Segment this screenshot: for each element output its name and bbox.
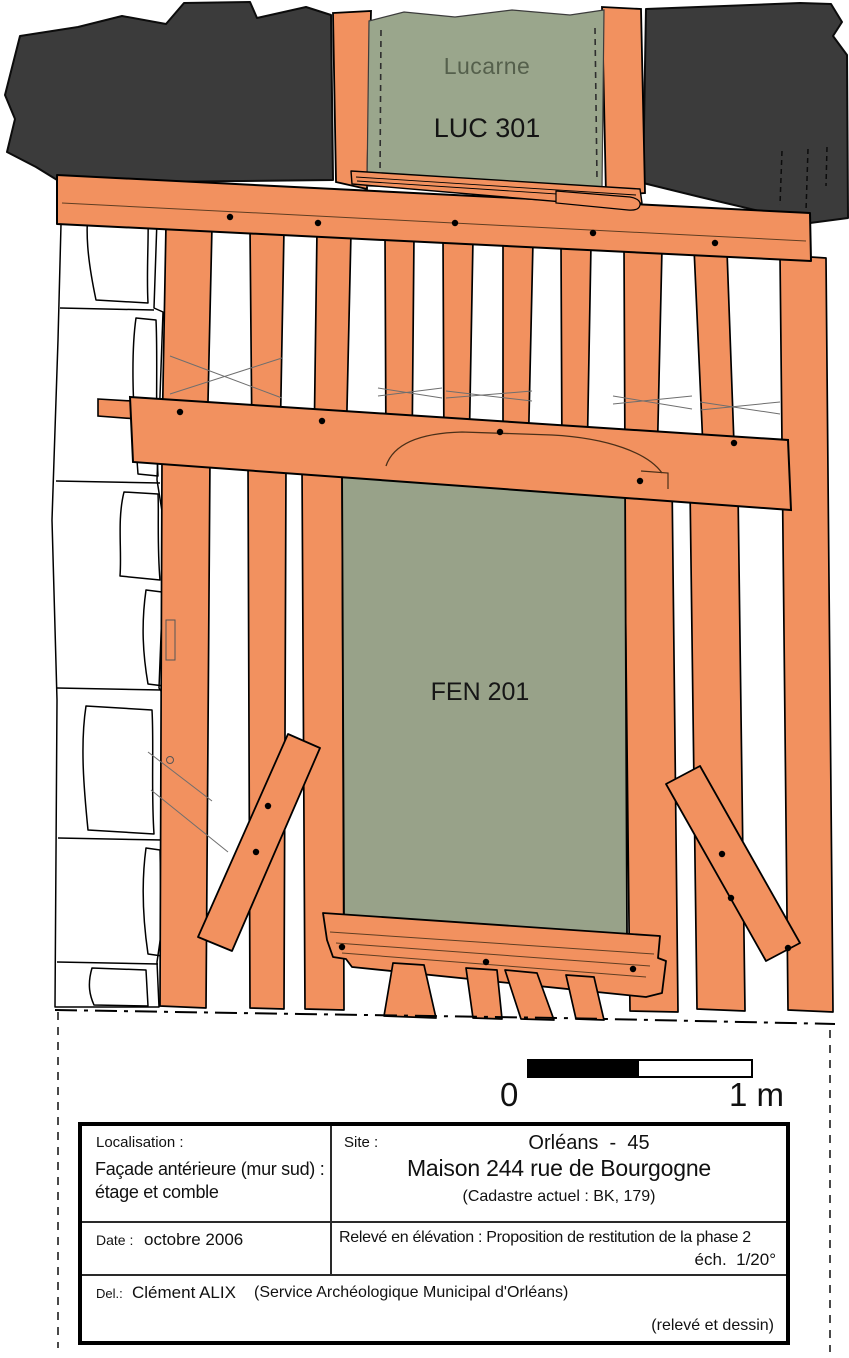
lucarne-title-label: Lucarne	[444, 53, 531, 79]
scale-one-meter-label: 1 m	[688, 1076, 784, 1114]
lucarne-dormer: Lucarne LUC 301	[333, 7, 645, 196]
localisation-cell: Localisation : Façade antérieure (mur su…	[82, 1126, 332, 1223]
window-jamb-post	[624, 475, 678, 1012]
date-label: Date :	[96, 1232, 133, 1248]
roof-left	[5, 2, 333, 183]
date-cell: Date : octobre 2006	[82, 1223, 332, 1276]
window-id-label: FEN 201	[431, 678, 530, 706]
del-service: (Service Archéologique Municipal d'Orléa…	[254, 1284, 568, 1302]
date-value: octobre 2006	[144, 1230, 243, 1250]
scale-zero-label: 0	[500, 1076, 540, 1114]
delineator-cell: Del.: Clément ALIX (Service Archéologiqu…	[82, 1276, 786, 1341]
scale-bar-filled-segment	[527, 1059, 637, 1078]
timber-post	[466, 968, 502, 1019]
sheet: FEN 201	[0, 0, 849, 1358]
localisation-label: Localisation :	[96, 1134, 184, 1151]
timber-post	[248, 460, 286, 1009]
releve-cell: Relevé en élévation : Proposition de res…	[332, 1223, 786, 1276]
corner-post	[780, 255, 833, 1012]
bottom-cut-line	[55, 1010, 835, 1024]
lucarne-jamb	[602, 7, 645, 196]
del-credit: (relevé et dessin)	[651, 1317, 774, 1335]
site-cell: Site : Orléans - 45 Maison 244 rue de Bo…	[332, 1126, 786, 1223]
del-label: Del.:	[96, 1286, 123, 1301]
releve-scale: éch. 1/20°	[695, 1250, 776, 1270]
site-building: Maison 244 rue de Bourgogne	[332, 1155, 786, 1182]
releve-description: Relevé en élévation : Proposition de res…	[339, 1229, 782, 1247]
timber-post	[690, 487, 745, 1011]
lucarne-id-label: LUC 301	[434, 113, 541, 143]
lucarne-opening	[367, 10, 604, 190]
site-city: Orléans - 45	[392, 1132, 786, 1155]
del-author: Clément ALIX	[132, 1283, 236, 1303]
lucarne-jamb	[333, 11, 371, 189]
site-cadastre: (Cadastre actuel : BK, 179)	[332, 1188, 786, 1206]
stone-wall	[52, 186, 167, 1007]
localisation-value: Façade antérieure (mur sud) : étage et c…	[95, 1158, 324, 1203]
site-label: Site :	[344, 1134, 378, 1151]
roof-right	[643, 3, 848, 223]
title-block: Localisation : Façade antérieure (mur su…	[78, 1122, 790, 1345]
